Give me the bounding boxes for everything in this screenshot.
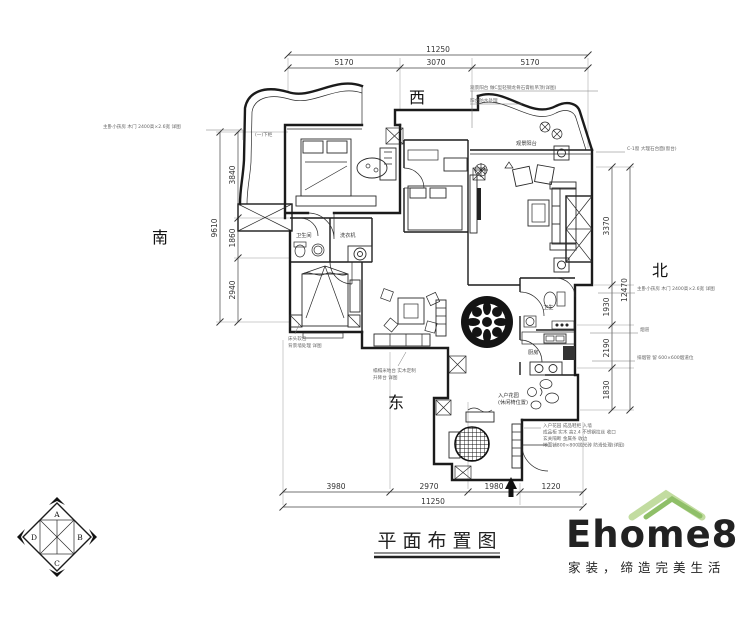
dim-left-seg2: 1860 [228, 228, 237, 247]
entry-hall [449, 408, 521, 468]
dimension-right: 3370 1930 2190 1830 12470 [602, 164, 634, 414]
title-block: 平面布置图 [374, 530, 503, 557]
compass-b: B [77, 533, 83, 542]
note-left: 主卧小孩房 木门 2400高×2.6宽 详图 [103, 123, 181, 130]
note-sw-1: 榻榻米地台 实木定制 [373, 367, 416, 374]
fridge [563, 346, 575, 360]
annotations: 主卧小孩房 木门 2400高×2.6宽 详图 观景阳台 做C型轻钢龙骨石膏板吊顶… [103, 84, 715, 449]
compass-a: A [53, 510, 60, 519]
dim-left-seg3: 2940 [228, 280, 237, 299]
note-bed3-2: 背景墙处理 详图 [288, 342, 322, 349]
note-br-1: 入户花园 成品鞋柜 入墙 [543, 422, 592, 429]
note-top-right-2: 阳台防水处理 [470, 97, 498, 104]
note-right-low: 排烟管 留 600×600烟道位 [637, 354, 694, 361]
cabinet [408, 150, 438, 160]
rug-oval [357, 158, 387, 178]
label-laundry: 洗衣机 [340, 231, 356, 239]
note-br-2: 成品柜 实木 高2.4 不锈钢拉丝 收口 [543, 429, 616, 436]
dim-right-seg1: 3370 [602, 216, 611, 235]
canopy-bed [290, 266, 360, 327]
shoe-cabinet [512, 424, 521, 468]
dim-bottom-seg1: 3980 [326, 482, 345, 491]
study [374, 289, 446, 346]
note-br-3: 玄关隔断 金属条 收边 [543, 435, 588, 442]
direction-north: 北 [652, 261, 668, 280]
note-right-top: C-1窗 大理石台面(窗台) [627, 145, 677, 152]
note-balcony-cabinet: (一)下柜 [255, 131, 273, 138]
dim-right-seg2: 1930 [602, 297, 611, 316]
note-right-duct: 烟道 [640, 326, 650, 333]
label-balcony: 观景阳台 [516, 139, 537, 147]
garden-chairs [528, 380, 559, 410]
armchairs [513, 165, 555, 187]
dim-top-seg1: 5170 [334, 58, 353, 67]
logo: Ehome8 家装，缔造完美生活 [566, 494, 738, 575]
sheet-title: 平面布置图 [377, 530, 502, 552]
desk [444, 158, 467, 171]
label-bath: 卫生 [543, 303, 553, 311]
bedroom2-bed [408, 186, 462, 230]
floor-plan-sheet: 11250 5170 3070 5170 3980 2970 1980 1220… [0, 0, 756, 630]
compass-d: D [31, 533, 37, 542]
dim-right-total: 12470 [620, 278, 629, 302]
dim-bottom-seg3: 1980 [484, 482, 503, 491]
note-right-mid: 主卧小孩房 木门 2400高×2.6宽 详图 [637, 285, 715, 292]
tv-cabinet [470, 175, 477, 233]
end-tables [554, 146, 569, 272]
walls [238, 84, 592, 480]
logo-name: Ehome8 [566, 513, 738, 556]
direction-labels: 西 南 北 东 [152, 88, 668, 412]
dim-bottom-total: 11250 [421, 497, 445, 506]
dim-bottom-seg4: 1220 [541, 482, 560, 491]
label-kitchen: 厨房 [528, 348, 538, 356]
logo-tagline: 家装，缔造完美生活 [568, 560, 726, 575]
dim-left-seg1: 3840 [228, 165, 237, 184]
note-sw-2: 升降台 详图 [373, 374, 398, 381]
dimension-bottom: 3980 2970 1980 1220 11250 [280, 482, 587, 511]
direction-south: 南 [152, 228, 168, 247]
direction-west: 西 [409, 88, 425, 107]
dim-left-total: 9610 [210, 218, 219, 237]
bath1-fixtures [294, 242, 324, 257]
note-bed3-1: 床头软包 [288, 335, 307, 342]
dim-top-total: 11250 [426, 45, 450, 54]
compass: A B C D [17, 497, 97, 577]
dim-bottom-seg2: 2970 [419, 482, 438, 491]
label-entry-garden: 入户花园 [498, 391, 519, 399]
dim-right-seg4: 1830 [602, 380, 611, 399]
label-entry-garden-2: (休闲椅位置) [498, 398, 528, 406]
master-bed [301, 139, 351, 196]
dim-right-seg3: 2190 [602, 338, 611, 357]
floor-plan-drawing: 11250 5170 3070 5170 3980 2970 1980 1220… [0, 0, 756, 630]
dimension-top: 11250 5170 3070 5170 [285, 45, 592, 72]
compass-c: C [54, 559, 60, 568]
tv [477, 188, 481, 220]
dimension-left: 3840 1860 2940 9610 [210, 129, 242, 326]
dim-top-seg3: 5170 [520, 58, 539, 67]
washing-machine [348, 246, 372, 262]
note-br-4: 地面铺800×800抛光砖 防滑处理(详图) [543, 442, 625, 449]
dining-table [461, 296, 513, 348]
dim-top-seg2: 3070 [426, 58, 445, 67]
wardrobe [296, 196, 376, 206]
bath2-fixtures [524, 278, 575, 329]
label-bath-small: 卫生间 [296, 231, 312, 239]
sofa [550, 182, 576, 250]
note-top-right-1: 观景阳台 做C型轻钢龙骨石膏板吊顶(详图) [470, 84, 557, 91]
direction-east: 东 [388, 393, 404, 412]
